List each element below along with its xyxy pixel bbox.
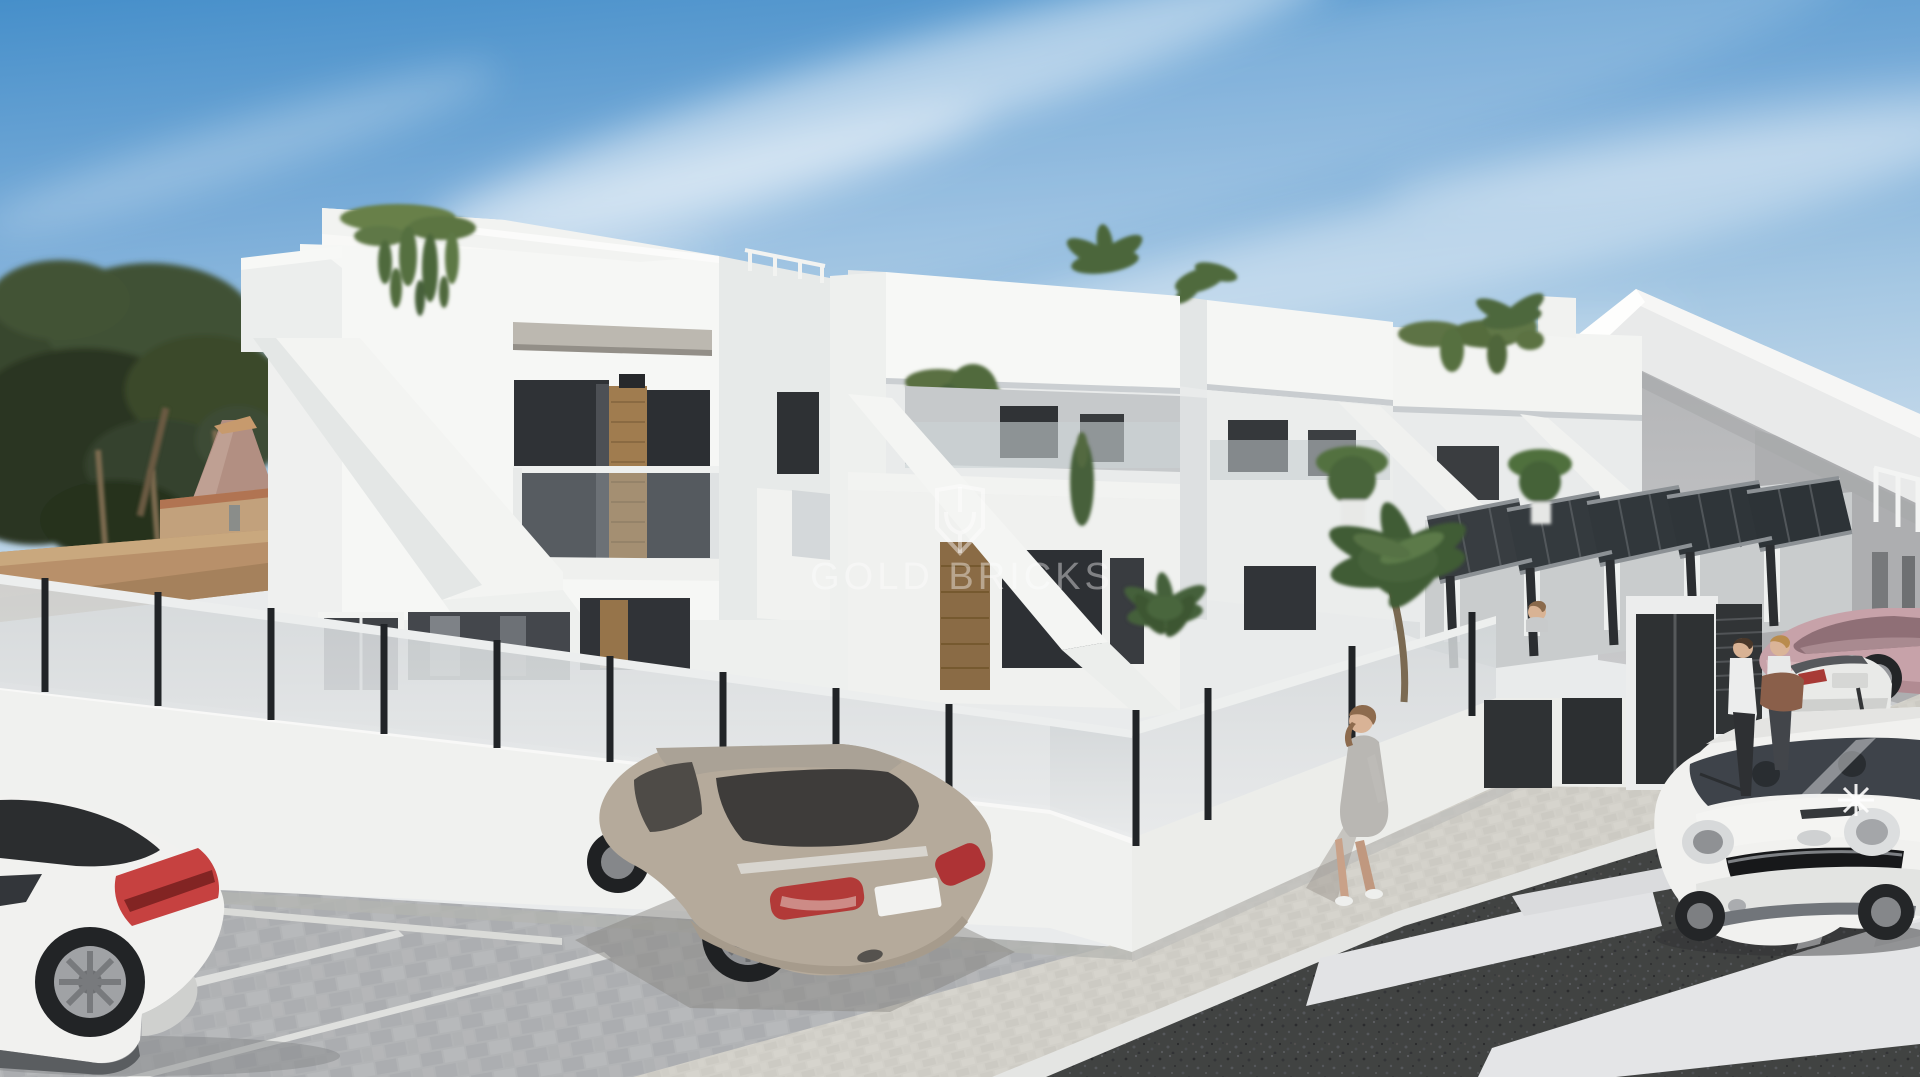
svg-text:GOLD BRICKS: GOLD BRICKS xyxy=(810,556,1114,598)
